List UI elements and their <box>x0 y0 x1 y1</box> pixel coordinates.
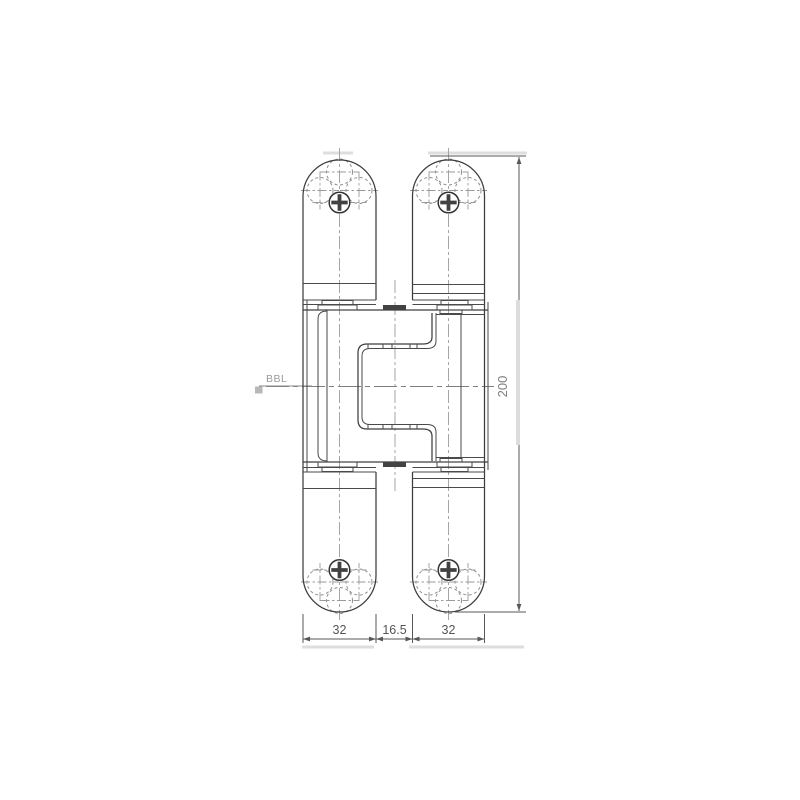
phillips-screw-icon <box>438 560 459 581</box>
drawing-page: BBL <box>0 0 800 800</box>
phillips-screw-icon <box>329 192 350 213</box>
dimension-height: 200 <box>495 376 510 398</box>
bottom-dimension-chain: 32 16.5 32 <box>303 614 485 643</box>
datum-marker <box>255 387 263 394</box>
dimension-gap: 16.5 <box>382 623 406 637</box>
height-dimension: 200 <box>430 156 526 612</box>
dimension-width-left: 32 <box>333 623 347 637</box>
phillips-screw-icon <box>438 192 459 213</box>
datum-label: BBL <box>266 373 287 385</box>
hinge-technical-drawing: BBL <box>0 0 800 800</box>
centerlines <box>266 148 494 620</box>
dimension-width-right: 32 <box>442 623 456 637</box>
phillips-screw-icon <box>329 560 350 581</box>
